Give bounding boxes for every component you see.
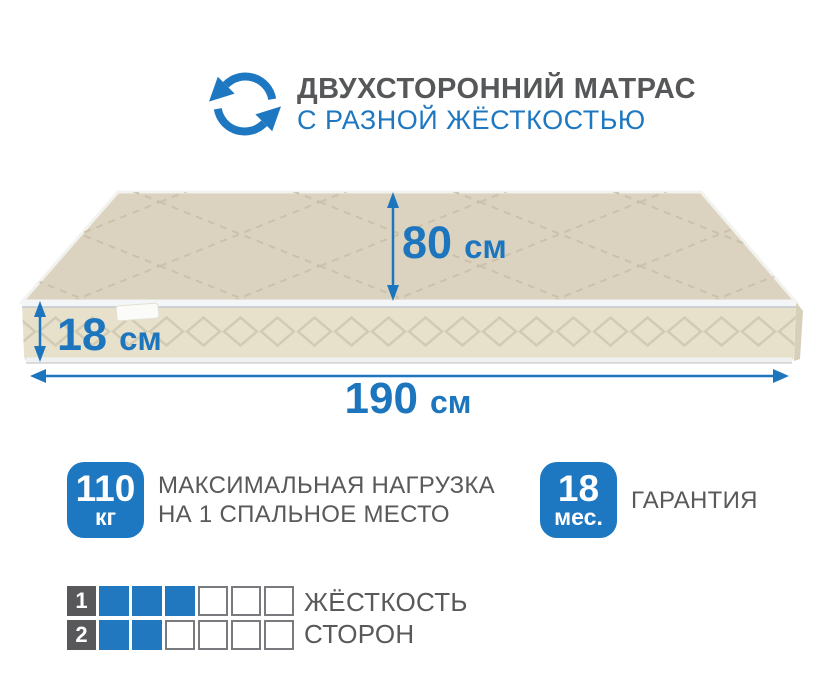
firmness-cell-filled <box>99 620 129 650</box>
max-load-label: МАКСИМАЛЬНАЯ НАГРУЗКА НА 1 СПАЛЬНОЕ МЕСТ… <box>158 471 495 529</box>
firmness-cell-empty <box>264 620 294 650</box>
max-load-label-line: НА 1 СПАЛЬНОЕ МЕСТО <box>158 500 495 529</box>
warranty-row: 18 мес. ГАРАНТИЯ <box>540 462 758 538</box>
page-title: ДВУХСТОРОННИЙ МАТРАС <box>297 73 696 105</box>
mattress-label-tag <box>116 303 159 321</box>
firmness-section: 12 ЖЁСТКОСТЬ СТОРОН <box>67 586 468 650</box>
firmness-cell-empty <box>264 586 294 616</box>
max-load-badge: 110 кг <box>67 462 144 538</box>
firmness-cell-filled <box>165 586 195 616</box>
warranty-label-line: ГАРАНТИЯ <box>631 486 758 515</box>
warranty-label: ГАРАНТИЯ <box>631 486 758 515</box>
mattress-diagram: 80см 18см 190см <box>0 170 816 430</box>
firmness-label-line: СТОРОН <box>304 618 468 650</box>
firmness-cell-empty <box>198 586 228 616</box>
warranty-value: 18 <box>558 471 599 506</box>
firmness-row: 1 <box>67 586 294 616</box>
firmness-side-number: 2 <box>67 620 96 650</box>
firmness-grid: 12 <box>67 586 294 650</box>
firmness-row: 2 <box>67 620 294 650</box>
firmness-cell-empty <box>198 620 228 650</box>
warranty-badge: 18 мес. <box>540 462 617 538</box>
page-subtitle: С РАЗНОЙ ЖЁСТКОСТЬЮ <box>297 105 696 135</box>
width-dimension-label: 190см <box>345 374 472 423</box>
header-text: ДВУХСТОРОННИЙ МАТРАС С РАЗНОЙ ЖЁСТКОСТЬЮ <box>297 73 696 135</box>
max-load-label-line: МАКСИМАЛЬНАЯ НАГРУЗКА <box>158 471 495 500</box>
infographic-page: ДВУХСТОРОННИЙ МАТРАС С РАЗНОЙ ЖЁСТКОСТЬЮ <box>0 0 816 700</box>
max-load-value: 110 <box>76 471 136 506</box>
firmness-label: ЖЁСТКОСТЬ СТОРОН <box>304 586 468 650</box>
firmness-cell-filled <box>132 620 162 650</box>
firmness-cell-empty <box>165 620 195 650</box>
max-load-row: 110 кг МАКСИМАЛЬНАЯ НАГРУЗКА НА 1 СПАЛЬН… <box>67 462 495 538</box>
warranty-unit: мес. <box>554 506 603 529</box>
firmness-cell-filled <box>132 586 162 616</box>
max-load-unit: кг <box>95 506 116 529</box>
rotate-arrows-icon <box>205 64 285 144</box>
firmness-label-line: ЖЁСТКОСТЬ <box>304 586 468 618</box>
firmness-cell-filled <box>99 586 129 616</box>
firmness-side-number: 1 <box>67 586 96 616</box>
firmness-cell-empty <box>231 586 261 616</box>
header: ДВУХСТОРОННИЙ МАТРАС С РАЗНОЙ ЖЁСТКОСТЬЮ <box>205 64 696 144</box>
firmness-cell-empty <box>231 620 261 650</box>
